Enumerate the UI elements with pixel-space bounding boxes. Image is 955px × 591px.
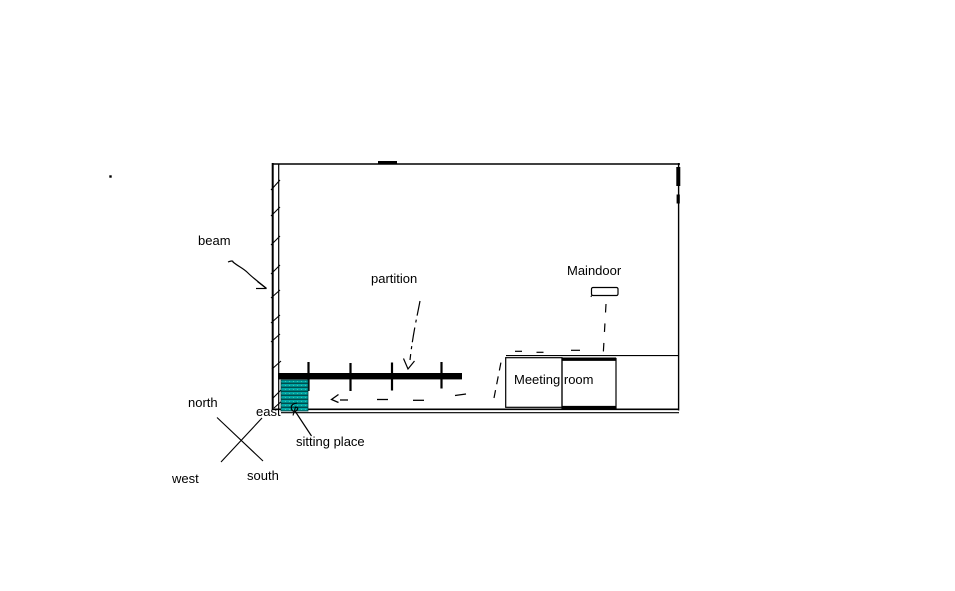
sitting-place-label: sitting place	[296, 434, 365, 449]
sitting-place-block	[281, 380, 308, 416]
sitting-place-pointer	[295, 411, 312, 436]
meeting-room-label: Meeting room	[514, 372, 593, 387]
partition-label: partition	[371, 271, 417, 286]
beam-label: beam	[198, 233, 231, 248]
compass-east-label: east	[256, 404, 281, 419]
floorplan-drawing	[0, 0, 955, 591]
main-door-shape	[591, 288, 618, 354]
floor-plan-canvas: beam partition Maindoor Meeting room sit…	[0, 0, 955, 591]
compass-south-label: south	[247, 468, 279, 483]
main-door-dashed-line	[603, 304, 606, 353]
stray-dot	[109, 175, 111, 177]
maindoor-label: Maindoor	[567, 263, 621, 278]
compass-north-label: north	[188, 395, 218, 410]
beam-arrow	[228, 261, 267, 289]
dashed-path	[332, 357, 503, 403]
partition-arrow	[404, 301, 421, 369]
compass-west-label: west	[172, 471, 199, 486]
compass-cross	[217, 418, 263, 463]
